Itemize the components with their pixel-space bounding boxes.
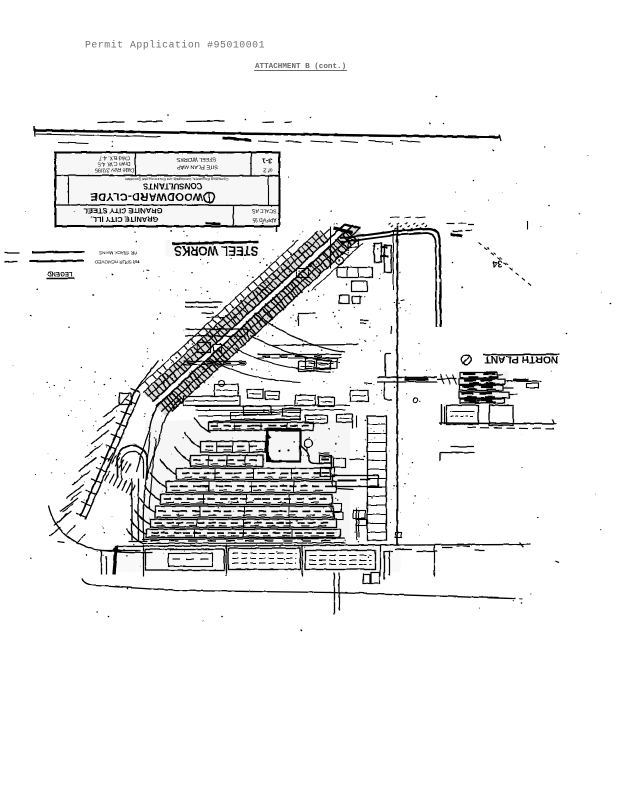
svg-text:ATTACHMENT B (cont.): ATTACHMENT B (cont.) <box>255 63 346 71</box>
svg-text:RR TRACK MAINS: RR TRACK MAINS <box>99 250 137 255</box>
svg-text:34: 34 <box>492 259 502 269</box>
svg-text:NORTH PLANT: NORTH PLANT <box>483 353 558 365</box>
svg-text:Permit Application #95010001: Permit Application #95010001 <box>85 40 265 51</box>
svg-text:LEGEND: LEGEND <box>46 270 72 276</box>
svg-text:RR SPUR REMOVED: RR SPUR REMOVED <box>94 259 139 264</box>
